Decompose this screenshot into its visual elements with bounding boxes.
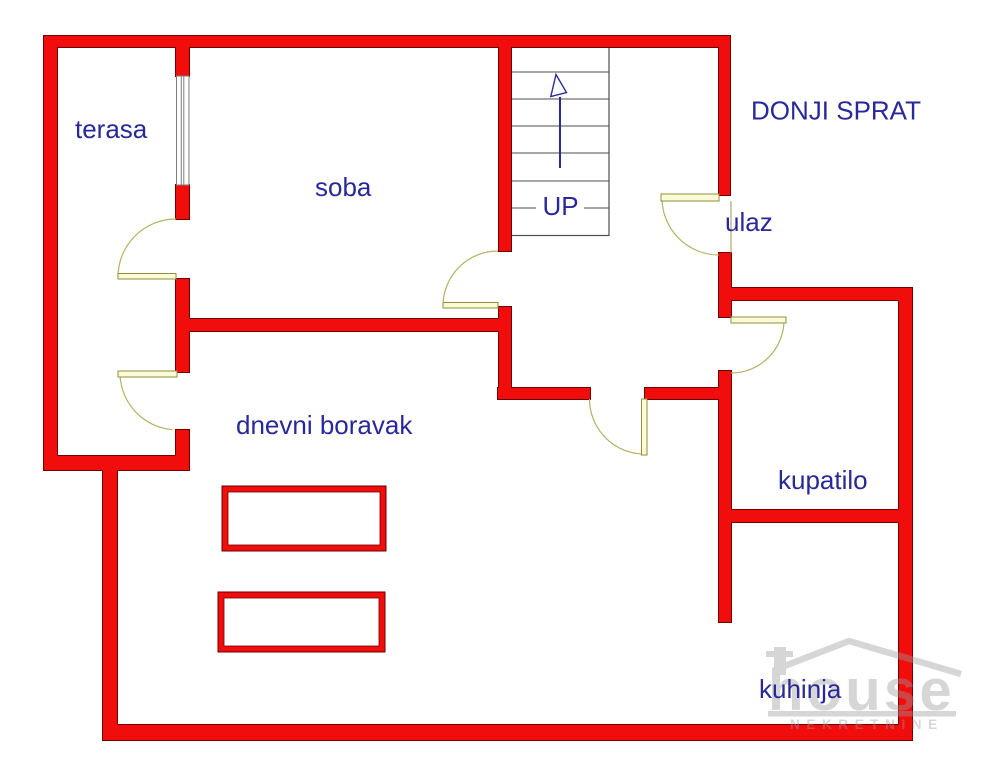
svg-text:DONJI SPRAT: DONJI SPRAT	[751, 96, 921, 126]
svg-text:soba: soba	[315, 172, 372, 202]
svg-text:NEKRETNINE: NEKRETNINE	[790, 717, 944, 732]
svg-text:UP: UP	[543, 191, 579, 221]
svg-text:kupatilo: kupatilo	[778, 465, 868, 495]
svg-text:dnevni boravak: dnevni boravak	[236, 410, 413, 440]
svg-text:kuhinja: kuhinja	[759, 674, 842, 704]
svg-text:ulaz: ulaz	[725, 207, 773, 237]
svg-text:terasa: terasa	[75, 114, 148, 144]
